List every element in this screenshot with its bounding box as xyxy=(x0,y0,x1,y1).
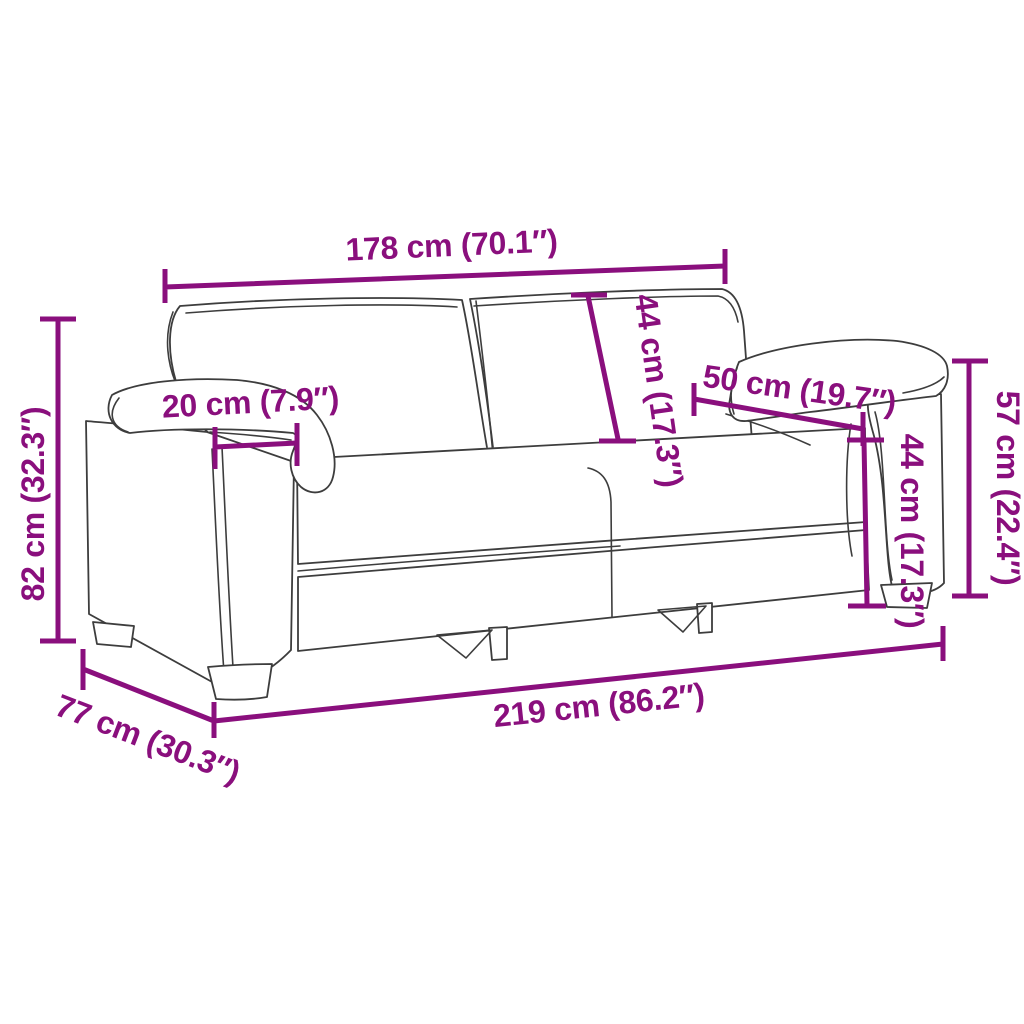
foot-front-left xyxy=(208,664,272,700)
label-overall-height: 82 cm (32.3″) xyxy=(15,407,51,602)
dimension-overall-height: 82 cm (32.3″) xyxy=(15,319,76,641)
foot-back-left xyxy=(93,622,134,647)
label-overall-width: 219 cm (86.2″) xyxy=(491,676,706,734)
foot-middle-left xyxy=(489,627,507,660)
label-arm-inner-height: 44 cm (17.3″) xyxy=(894,434,930,629)
label-arm-height: 57 cm (22.4″) xyxy=(990,391,1024,586)
dimension-diagram: 178 cm (70.1″) 44 cm (17.3″) 50 cm (19.7… xyxy=(0,0,1024,1024)
wire-support-left xyxy=(437,630,492,658)
sofa-dimension-svg: 178 cm (70.1″) 44 cm (17.3″) 50 cm (19.7… xyxy=(0,0,1024,1024)
label-back-width: 178 cm (70.1″) xyxy=(345,222,559,267)
dimension-line-arm-height xyxy=(952,361,988,596)
sofa-sketch xyxy=(86,289,948,700)
dimension-arm-height: 57 cm (22.4″) xyxy=(952,361,1024,596)
left-arm-block xyxy=(86,421,294,688)
